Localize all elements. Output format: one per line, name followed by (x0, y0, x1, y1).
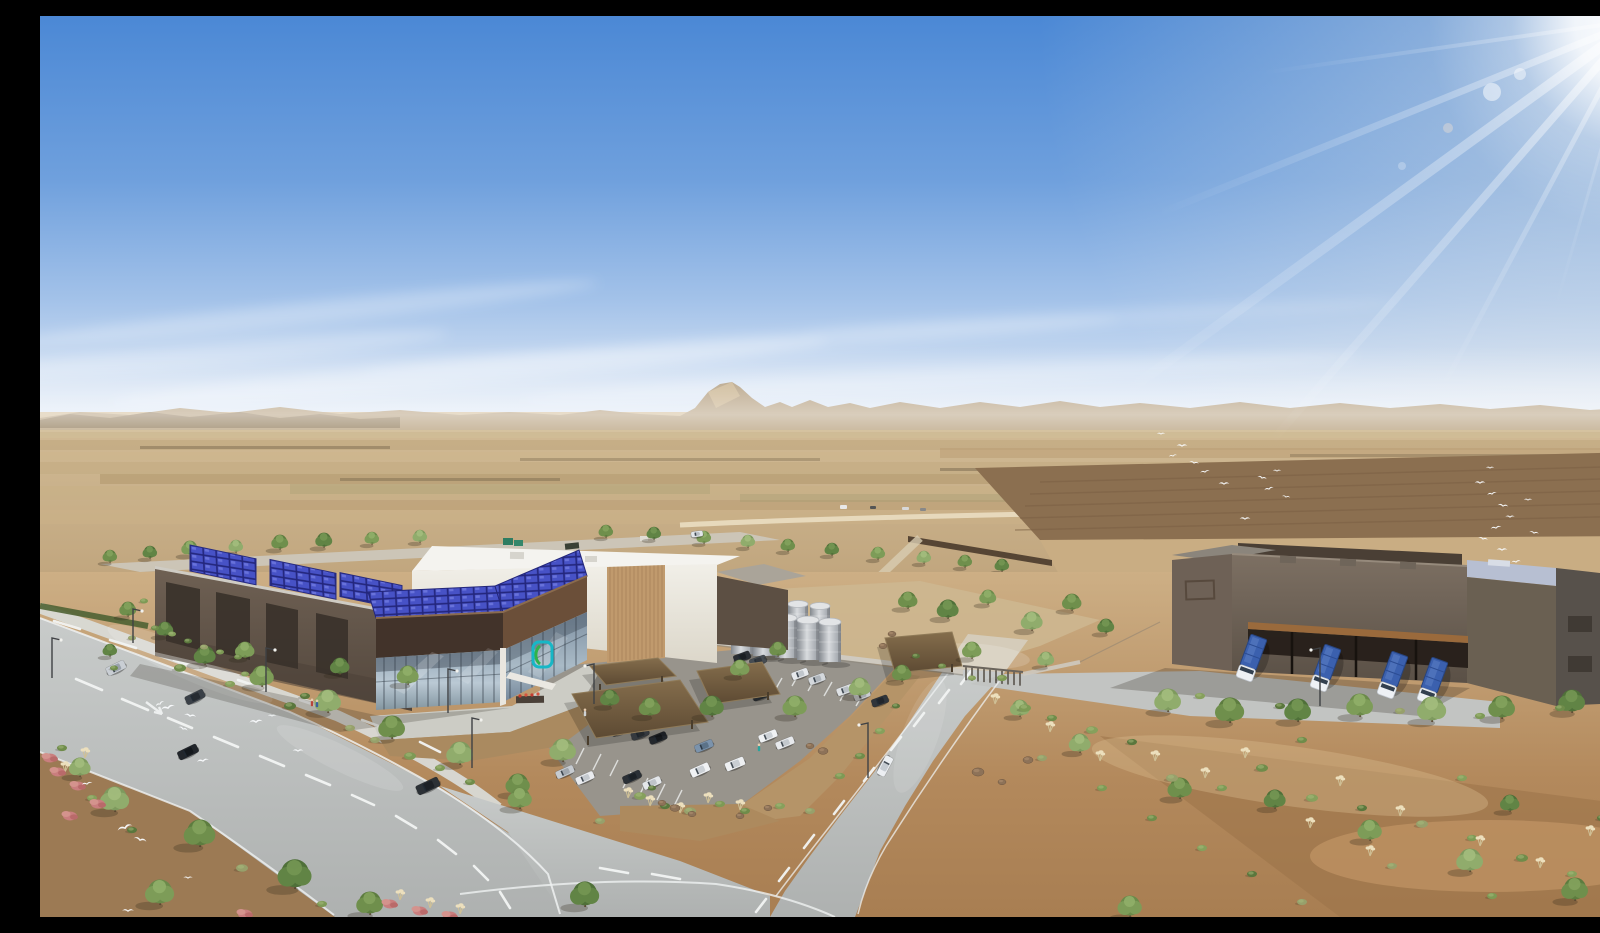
lens-flare (1514, 68, 1526, 80)
rock (688, 811, 696, 816)
distant-car (920, 508, 926, 511)
lens-flare (1443, 123, 1453, 133)
distant-car (840, 505, 847, 509)
rock (888, 631, 896, 636)
distant-car (870, 506, 876, 509)
right-block (1556, 568, 1600, 706)
rock (1023, 757, 1033, 764)
pedestrian (758, 744, 761, 752)
left-block-face (1172, 554, 1232, 671)
rock (670, 805, 680, 812)
distant-car (902, 507, 909, 510)
corner-column (500, 648, 506, 706)
warehouse-building (1110, 543, 1600, 716)
rock (818, 748, 828, 755)
rock (736, 813, 744, 818)
rock (879, 643, 887, 648)
pedestrian (311, 699, 314, 707)
pedestrian (584, 709, 587, 717)
lens-flare (1398, 162, 1406, 170)
lens-flare (1483, 83, 1501, 101)
wood-slat-band (607, 565, 665, 663)
fascia-front (376, 612, 503, 658)
green-equipment (514, 540, 523, 546)
rock (972, 768, 984, 776)
green-equipment (503, 538, 513, 545)
aerial-campus-rendering (40, 16, 1600, 917)
rock (764, 805, 772, 810)
rock (658, 800, 666, 805)
rock (998, 779, 1006, 784)
pedestrian (316, 700, 319, 708)
rock (806, 743, 814, 748)
scene-svg (40, 16, 1600, 917)
